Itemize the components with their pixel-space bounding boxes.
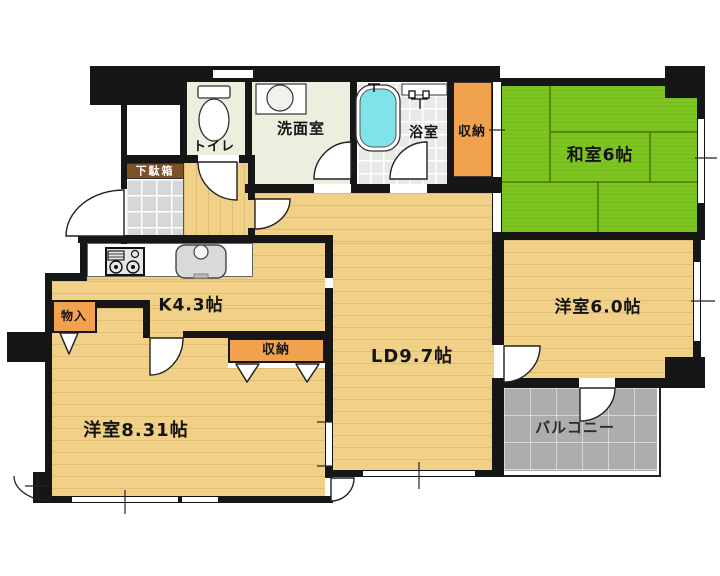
washroom-floor <box>252 82 350 193</box>
wall <box>447 82 454 178</box>
wall <box>97 300 143 308</box>
wall <box>45 281 52 503</box>
wall <box>325 338 333 422</box>
wall <box>78 235 333 243</box>
door-opening <box>198 155 239 163</box>
door-opening <box>314 184 351 193</box>
service-door-arc <box>331 478 354 501</box>
entrance-tile-floor <box>126 179 184 237</box>
wall <box>7 332 45 362</box>
wall <box>121 103 127 189</box>
floor-plan: トイレ 洗面室 浴室 収納 和室6帖 下駄箱 物入 K4.3帖 収納 洋室8.3… <box>0 0 720 576</box>
room-label-storage-lower: 収納 <box>262 344 290 357</box>
room-label-western-room-small: 洋室6.0帖 <box>554 300 641 317</box>
room-label-bathroom: 浴室 <box>409 126 439 140</box>
wall <box>90 66 182 105</box>
room-label-shoe-cabinet: 下駄箱 <box>136 166 175 177</box>
balcony-railing <box>659 388 661 477</box>
wall-gap <box>325 278 333 288</box>
wall <box>697 92 705 119</box>
wall <box>615 378 667 388</box>
wall <box>665 357 705 388</box>
wall <box>143 300 150 338</box>
sliding-door-opening <box>325 422 333 466</box>
wall <box>245 184 502 193</box>
sliding-door-opening <box>492 193 502 232</box>
kitchen-counter <box>87 243 253 277</box>
wall <box>180 82 187 163</box>
wall <box>218 496 333 503</box>
wall <box>494 78 670 86</box>
hallway-floor <box>184 163 252 243</box>
room-label-japanese-room: 和室6帖 <box>567 148 634 165</box>
wall <box>697 203 705 232</box>
room-label-toilet: トイレ <box>193 141 235 154</box>
wall <box>693 341 701 358</box>
window <box>693 262 701 341</box>
wall <box>183 331 333 338</box>
door-opening <box>390 184 427 193</box>
wall <box>492 378 579 388</box>
wall <box>492 240 504 345</box>
window <box>363 470 475 477</box>
window <box>213 69 253 79</box>
room-label-balcony: バルコニー <box>535 421 615 436</box>
wall <box>350 82 357 193</box>
pipe-space-floor <box>127 105 180 155</box>
room-label-washroom: 洗面室 <box>277 122 325 137</box>
room-label-kitchen: K4.3帖 <box>158 298 223 315</box>
sliding-door-opening <box>492 82 502 177</box>
wall <box>245 82 252 163</box>
balcony-railing <box>504 475 661 477</box>
window <box>72 496 178 503</box>
room-label-storage-upper: 収納 <box>458 126 486 139</box>
wall <box>492 232 705 240</box>
wall <box>45 496 72 503</box>
wall <box>45 273 87 281</box>
wall <box>693 240 701 262</box>
entrance-door-arc <box>66 190 124 236</box>
wall <box>492 388 504 477</box>
room-label-western-room-large: 洋室8.31帖 <box>83 422 188 440</box>
wall <box>325 243 333 278</box>
window <box>182 496 218 503</box>
room-label-closet: 物入 <box>61 310 87 322</box>
room-label-living-dining: LD9.7帖 <box>371 348 453 366</box>
wall <box>333 470 363 477</box>
wall <box>325 288 333 338</box>
wall <box>248 155 255 200</box>
window <box>697 119 705 203</box>
